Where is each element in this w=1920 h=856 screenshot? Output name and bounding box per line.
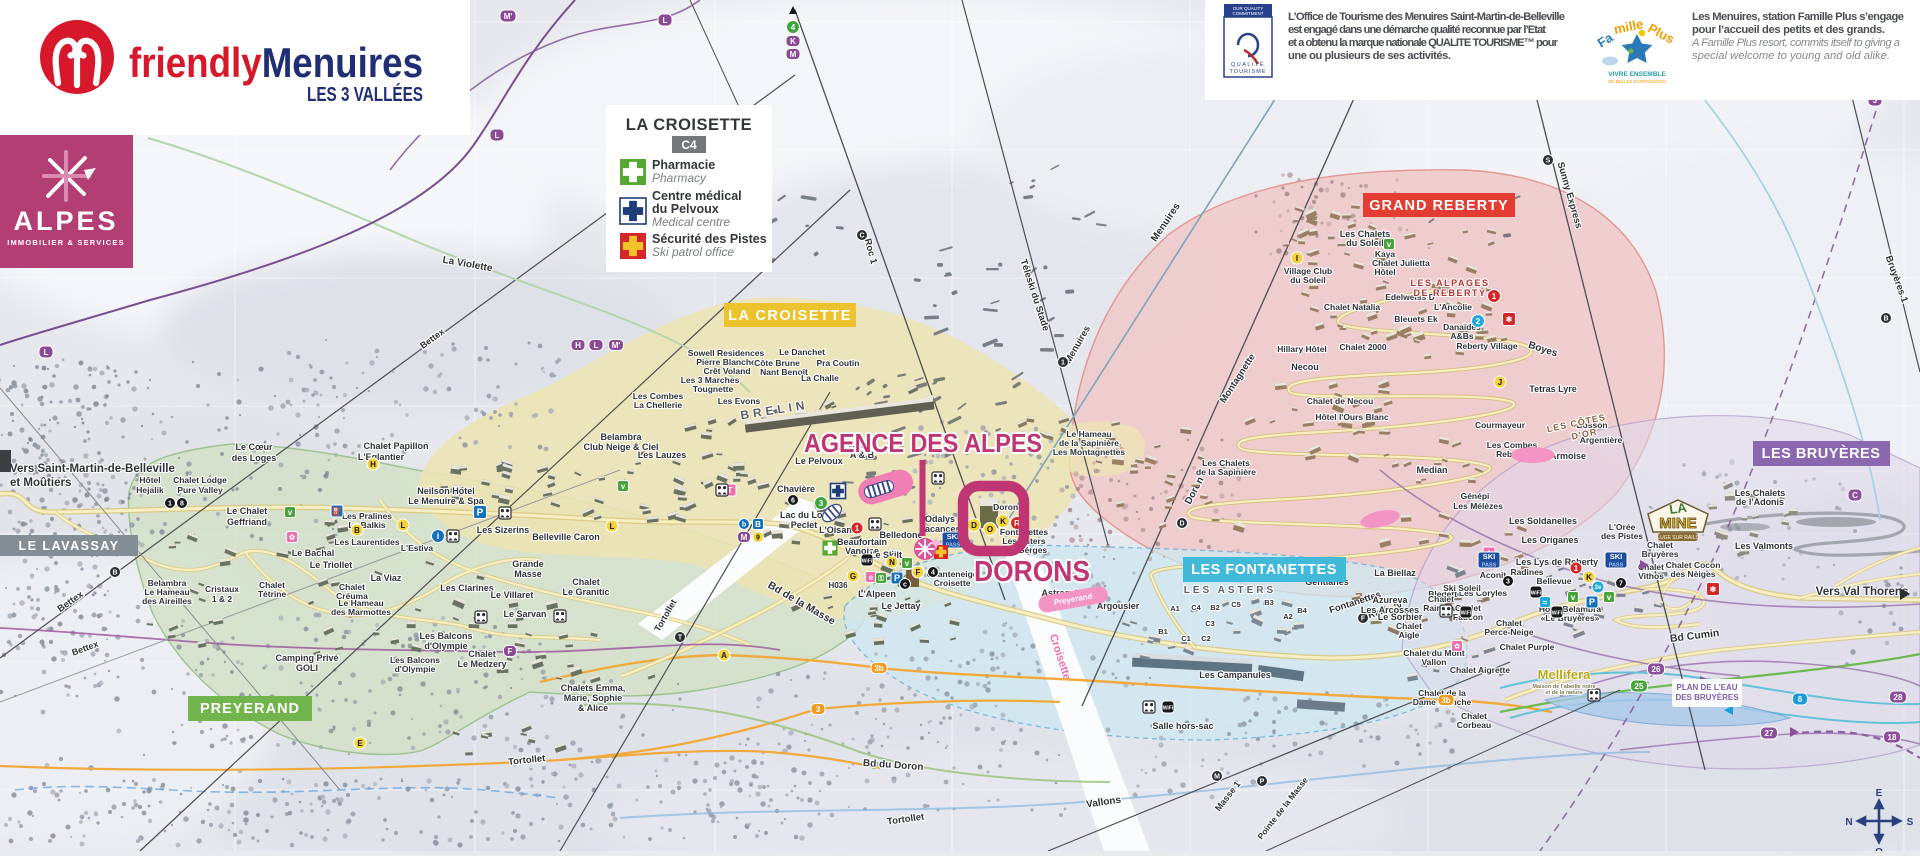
- svg-text:d'Olympie: d'Olympie: [424, 641, 467, 651]
- svg-text:P: P: [1589, 597, 1595, 607]
- svg-text:M': M': [504, 12, 513, 21]
- svg-text:L'Ancolie: L'Ancolie: [1434, 302, 1472, 312]
- svg-text:WiFi: WiFi: [862, 559, 873, 565]
- svg-text:PASS: PASS: [1482, 563, 1497, 569]
- svg-text:6: 6: [791, 498, 795, 505]
- svg-text:⛽: ⛽: [332, 506, 342, 516]
- svg-text:I: I: [1296, 254, 1298, 263]
- svg-text:E: E: [1876, 788, 1883, 799]
- svg-text:Chalet Lodge: Chalet Lodge: [173, 475, 227, 485]
- svg-text:Vallon: Vallon: [1421, 657, 1446, 667]
- svg-text:K: K: [1000, 517, 1006, 526]
- svg-text:Julietta: Julietta: [1400, 258, 1430, 268]
- svg-text:1: 1: [855, 524, 860, 533]
- svg-text:B: B: [354, 526, 360, 535]
- svg-text:B: B: [112, 570, 117, 577]
- svg-text:B2: B2: [1210, 603, 1220, 612]
- svg-text:M: M: [1214, 774, 1220, 781]
- svg-text:et Moûtiers: et Moûtiers: [10, 477, 71, 489]
- svg-text:du Soleil: du Soleil: [1346, 238, 1384, 248]
- svg-text:Necou: Necou: [1291, 362, 1319, 372]
- svg-text:La Chellerie: La Chellerie: [634, 400, 682, 410]
- svg-text:K: K: [1586, 573, 1592, 582]
- svg-text:Geffriand: Geffriand: [227, 517, 267, 527]
- svg-text:Les Balcons: Les Balcons: [419, 631, 472, 641]
- svg-text:Sécurité des Pistes: Sécurité des Pistes: [652, 232, 767, 246]
- svg-text:des Loges: des Loges: [232, 453, 277, 463]
- svg-text:P: P: [477, 508, 484, 519]
- svg-text:2e: 2e: [1595, 585, 1602, 591]
- svg-text:SKI: SKI: [1610, 552, 1623, 561]
- svg-text:une ou plusieurs de ses activi: une ou plusieurs de ses activités.: [1288, 50, 1451, 62]
- svg-text:Le Menuire & Spa: Le Menuire & Spa: [408, 496, 485, 506]
- svg-text:3: 3: [816, 705, 821, 714]
- svg-text:La Biellaz: La Biellaz: [1374, 568, 1416, 578]
- svg-text:des Aireilles: des Aireilles: [142, 596, 192, 606]
- svg-text:O: O: [987, 525, 993, 534]
- svg-text:A1: A1: [1170, 604, 1180, 613]
- svg-text:Le Triollet: Le Triollet: [310, 560, 353, 570]
- svg-text:Odalys: Odalys: [925, 514, 955, 524]
- svg-text:friendlyMenuires: friendlyMenuires: [129, 39, 423, 86]
- svg-text:c: c: [903, 582, 907, 589]
- svg-text:v: v: [1571, 593, 1576, 602]
- svg-text:1: 1: [1061, 360, 1065, 367]
- svg-text:i: i: [437, 531, 440, 541]
- svg-text:Dorons: Dorons: [993, 502, 1023, 512]
- svg-text:B1: B1: [1158, 627, 1168, 636]
- svg-text:special welcome to young and o: special welcome to young and old alike.: [1692, 50, 1890, 62]
- svg-text:LA CROISETTE: LA CROISETTE: [626, 116, 752, 134]
- svg-text:Hôtel: Hôtel: [1374, 267, 1395, 277]
- svg-text:S: S: [1907, 817, 1914, 828]
- svg-text:M: M: [741, 533, 748, 542]
- svg-text:Marie, Sophie: Marie, Sophie: [564, 693, 623, 703]
- svg-text:SKI: SKI: [1483, 552, 1496, 561]
- svg-text:1: 1: [168, 501, 172, 508]
- svg-text:S: S: [1546, 158, 1551, 165]
- svg-text:Cristaux: Cristaux: [205, 584, 239, 594]
- svg-text:O: O: [1875, 847, 1883, 851]
- svg-text:PREYERAND: PREYERAND: [200, 701, 300, 717]
- svg-text:28: 28: [1894, 693, 1903, 702]
- svg-text:Mellifera: Mellifera: [1538, 667, 1592, 682]
- svg-text:DORONS: DORONS: [974, 556, 1090, 588]
- svg-text:LA CROISETTE: LA CROISETTE: [728, 308, 852, 324]
- svg-text:LES ASTERS: LES ASTERS: [1184, 585, 1276, 596]
- svg-text:WiFi: WiFi: [1461, 611, 1472, 617]
- svg-text:6: 6: [1798, 695, 1803, 704]
- svg-text:d'Olympie: d'Olympie: [395, 664, 436, 674]
- svg-text:3: 3: [819, 499, 824, 508]
- svg-text:P: P: [1260, 779, 1265, 786]
- svg-text:Les Sizerins: Les Sizerins: [477, 525, 530, 535]
- svg-text:Les Soldanelles: Les Soldanelles: [1509, 516, 1577, 526]
- svg-text:b: b: [742, 522, 746, 529]
- svg-text:H: H: [370, 460, 376, 469]
- svg-text:LES BRUYÈRES: LES BRUYÈRES: [1762, 445, 1881, 462]
- svg-text:Les Lauzes: Les Lauzes: [638, 450, 687, 460]
- svg-text:Les Montagnettes: Les Montagnettes: [1053, 447, 1126, 457]
- svg-text:❄: ❄: [1506, 315, 1513, 324]
- svg-text:C: C: [1852, 491, 1858, 500]
- svg-text:⚿: ⚿: [878, 576, 884, 583]
- svg-text:3b: 3b: [874, 664, 883, 673]
- svg-text:Camping Privé: Camping Privé: [275, 653, 338, 663]
- svg-text:C4: C4: [1191, 603, 1201, 612]
- svg-text:Reberty Village: Reberty Village: [1456, 341, 1518, 351]
- svg-text:T: T: [678, 635, 683, 642]
- svg-text:L'Eglantier: L'Eglantier: [358, 452, 405, 462]
- svg-text:GOLI: GOLI: [296, 663, 318, 673]
- svg-text:LUGE SUR RAILS: LUGE SUR RAILS: [1657, 535, 1699, 541]
- svg-text:P: P: [894, 573, 900, 583]
- svg-text:ALPES: ALPES: [13, 206, 118, 236]
- svg-text:DE REBERTY: DE REBERTY: [1413, 288, 1486, 298]
- svg-text:M: M: [790, 50, 797, 59]
- svg-text:Bleuets Ek: Bleuets Ek: [1394, 314, 1438, 324]
- svg-text:Masse: Masse: [514, 569, 542, 579]
- svg-text:Chalet Natalia: Chalet Natalia: [1324, 302, 1380, 312]
- svg-text:SKI: SKI: [947, 532, 960, 541]
- svg-text:3: 3: [1506, 579, 1510, 586]
- svg-text:C3: C3: [1205, 619, 1215, 628]
- svg-text:WiFi: WiFi: [1552, 611, 1563, 617]
- svg-text:H: H: [575, 341, 581, 350]
- svg-text:❄: ❄: [1710, 585, 1717, 594]
- svg-text:Hillary Hôtel: Hillary Hôtel: [1277, 344, 1327, 354]
- svg-text:COMMITMENT: COMMITMENT: [1233, 11, 1264, 16]
- svg-text:Pharmacie: Pharmacie: [652, 158, 715, 172]
- svg-text:GRAND REBERTY: GRAND REBERTY: [1369, 198, 1508, 214]
- svg-text:≈: ≈: [1543, 598, 1548, 607]
- svg-text:N: N: [889, 558, 895, 567]
- svg-text:Croisette: Croisette: [934, 578, 971, 588]
- svg-text:Azureva: Azureva: [1372, 595, 1408, 605]
- svg-text:Belledone: Belledone: [879, 530, 922, 540]
- svg-text:Belleville Caron: Belleville Caron: [532, 532, 600, 542]
- svg-text:Les Evons: Les Evons: [718, 396, 761, 406]
- svg-text:B3: B3: [1264, 598, 1274, 607]
- svg-text:AGENCE DES ALPES: AGENCE DES ALPES: [804, 428, 1042, 458]
- svg-text:VIVRE ENSEMBLE: VIVRE ENSEMBLE: [1608, 71, 1666, 78]
- svg-text:Lac du Lou: Lac du Lou: [780, 510, 828, 520]
- svg-text:9: 9: [756, 535, 760, 542]
- svg-text:v: v: [1607, 593, 1612, 602]
- svg-text:et de la nature: et de la nature: [1545, 690, 1582, 696]
- svg-text:Aigle: Aigle: [1399, 630, 1420, 640]
- svg-text:Le Cœur: Le Cœur: [236, 442, 273, 452]
- svg-text:Chalet Aigrette: Chalet Aigrette: [1450, 665, 1510, 675]
- svg-text:L: L: [594, 341, 599, 350]
- svg-text:Le Chalet: Le Chalet: [227, 506, 268, 516]
- svg-text:est engagé dans une démarche q: est engagé dans une démarche qualité rec…: [1288, 24, 1546, 36]
- svg-text:Corbeau: Corbeau: [1457, 720, 1491, 730]
- svg-text:Centre médical: Centre médical: [652, 189, 742, 203]
- svg-text:D: D: [1179, 521, 1184, 528]
- svg-text:Chalet de Necou: Chalet de Necou: [1307, 396, 1374, 406]
- svg-text:F: F: [916, 568, 921, 577]
- svg-text:PASS: PASS: [1609, 563, 1624, 569]
- svg-text:A Famille Plus resort, commits: A Famille Plus resort, commits itself to…: [1691, 37, 1900, 49]
- svg-text:Medical centre: Medical centre: [652, 215, 730, 229]
- svg-text:Les Mélèzes: Les Mélèzes: [1453, 501, 1503, 511]
- svg-text:LES FONTANETTES: LES FONTANETTES: [1191, 562, 1337, 578]
- svg-text:A: A: [721, 651, 727, 660]
- svg-text:QUALITÉ: QUALITÉ: [1231, 61, 1265, 68]
- svg-text:E: E: [357, 739, 363, 748]
- svg-text:26: 26: [1652, 665, 1661, 674]
- svg-text:PLAN DE L'EAU: PLAN DE L'EAU: [1676, 683, 1737, 692]
- svg-text:Vers Saint-Martin-de-Bellevill: Vers Saint-Martin-de-Belleville: [10, 463, 175, 475]
- svg-text:✿: ✿: [289, 534, 295, 542]
- svg-text:25: 25: [1635, 682, 1644, 691]
- svg-text:Les Menuires, station Famille: Les Menuires, station Famille Plus s’eng…: [1692, 11, 1904, 23]
- svg-text:Pra Coutin: Pra Coutin: [817, 358, 860, 368]
- svg-text:DES BRUYÈRES: DES BRUYÈRES: [1675, 693, 1739, 702]
- svg-text:des Marmottes: des Marmottes: [331, 607, 391, 617]
- svg-text:de l'Adonis: de l'Adonis: [1736, 497, 1784, 507]
- svg-text:TOURISME: TOURISME: [1230, 69, 1267, 75]
- svg-text:D: D: [971, 521, 977, 530]
- svg-text:G: G: [850, 572, 856, 581]
- svg-text:Chavière: Chavière: [777, 484, 815, 494]
- svg-text:1: 1: [1574, 564, 1579, 573]
- svg-text:B4: B4: [1297, 606, 1307, 615]
- svg-text:Chalet: Chalet: [468, 649, 496, 659]
- svg-text:Le Granitic: Le Granitic: [562, 587, 609, 597]
- svg-text:Les Laurentides: Les Laurentides: [334, 537, 399, 547]
- svg-text:Les Lys de Reberty: Les Lys de Reberty: [1516, 557, 1598, 567]
- svg-text:Armoise: Armoise: [1550, 451, 1586, 461]
- svg-text:Bruyères: Bruyères: [1642, 549, 1679, 559]
- svg-text:Les Valmonts: Les Valmonts: [1735, 541, 1793, 551]
- svg-text:J: J: [1498, 378, 1502, 387]
- svg-text:LES 3 VALLÉES: LES 3 VALLÉES: [307, 83, 423, 106]
- svg-text:L: L: [401, 521, 406, 530]
- svg-text:des Nèiges: des Nèiges: [1671, 569, 1716, 579]
- svg-text:F: F: [508, 647, 513, 656]
- svg-text:F: F: [1361, 616, 1366, 623]
- svg-text:Le Danchet: Le Danchet: [779, 347, 825, 357]
- svg-text:Tétrine: Tétrine: [258, 589, 287, 599]
- svg-text:C: C: [859, 233, 864, 240]
- svg-text:Les Campanules: Les Campanules: [1199, 670, 1271, 680]
- svg-text:& Alice: & Alice: [578, 703, 608, 713]
- svg-text:L: L: [44, 348, 49, 357]
- svg-text:Les Clarines: Les Clarines: [440, 583, 494, 593]
- svg-text:v: v: [621, 482, 626, 491]
- svg-text:C4: C4: [681, 138, 697, 152]
- svg-text:18: 18: [1888, 733, 1897, 742]
- svg-text:L'Estiva: L'Estiva: [401, 543, 434, 553]
- svg-text:LE LAVASSAY: LE LAVASSAY: [18, 539, 119, 553]
- svg-text:Le Jettay: Le Jettay: [881, 601, 920, 611]
- svg-text:de la Sapinière: de la Sapinière: [1196, 467, 1256, 477]
- svg-text:Peclet: Peclet: [791, 520, 818, 530]
- svg-text:N: N: [1845, 817, 1852, 828]
- svg-text:8: 8: [180, 501, 184, 508]
- svg-text:Génépi: Génépi: [1461, 491, 1490, 501]
- svg-text:DE BELLES EXPÉRIENCES: DE BELLES EXPÉRIENCES: [1608, 78, 1666, 84]
- svg-text:L'Alpeen: L'Alpeen: [858, 589, 896, 599]
- svg-text:WiFi: WiFi: [1531, 591, 1542, 597]
- svg-text:L: L: [663, 16, 668, 25]
- svg-text:Ski Soleil: Ski Soleil: [1443, 583, 1481, 593]
- svg-text:Chalet 2000: Chalet 2000: [1339, 342, 1387, 352]
- svg-text:e: e: [869, 573, 874, 582]
- svg-text:Salle hors-sac: Salle hors-sac: [1152, 721, 1213, 731]
- svg-text:WiFi: WiFi: [1163, 706, 1174, 712]
- svg-text:Chalet: Chalet: [572, 577, 600, 587]
- svg-text:du Pelvoux: du Pelvoux: [652, 202, 719, 216]
- svg-text:L: L: [610, 522, 615, 531]
- svg-text:pour l’accueil des petits et d: pour l’accueil des petits et des grands.: [1692, 24, 1885, 36]
- svg-text:L’Office de Tourisme des Menui: L’Office de Tourisme des Menuires Saint-…: [1288, 11, 1565, 23]
- svg-text:3b: 3b: [1441, 696, 1450, 705]
- svg-text:Aconit: Aconit: [1480, 570, 1507, 580]
- svg-text:✿: ✿: [1454, 643, 1460, 651]
- svg-text:La Viaz: La Viaz: [371, 573, 402, 583]
- svg-text:2: 2: [1476, 317, 1481, 326]
- svg-text:Argousier: Argousier: [1097, 601, 1140, 611]
- svg-text:La Challe: La Challe: [801, 373, 839, 383]
- svg-text:Perce-Neige: Perce-Neige: [1484, 627, 1533, 637]
- svg-text:1 & 2: 1 & 2: [212, 594, 233, 604]
- svg-text:Hôtel: Hôtel: [139, 475, 160, 485]
- svg-text:Grande: Grande: [512, 559, 544, 569]
- svg-text:et a obtenu la marque national: et a obtenu la marque nationale QUALITE …: [1288, 37, 1559, 49]
- svg-text:A2: A2: [1283, 612, 1293, 621]
- svg-text:v: v: [1387, 240, 1392, 249]
- svg-text:Tougnette: Tougnette: [693, 384, 734, 394]
- svg-text:du Soleil: du Soleil: [1290, 275, 1325, 285]
- svg-text:7: 7: [1619, 581, 1623, 588]
- svg-text:C2: C2: [1201, 634, 1211, 643]
- svg-text:«Le Bruyères»: «Le Bruyères»: [1541, 613, 1600, 623]
- svg-text:Chalets Emma,: Chalets Emma,: [561, 683, 626, 693]
- svg-text:K: K: [790, 37, 796, 46]
- svg-text:Hejalik: Hejalik: [136, 485, 164, 495]
- svg-text:v: v: [288, 508, 293, 517]
- svg-text:LES ALPAGES: LES ALPAGES: [1410, 278, 1489, 288]
- svg-text:Ski patrol office: Ski patrol office: [652, 245, 734, 259]
- svg-text:Les Origanes: Les Origanes: [1521, 535, 1578, 545]
- svg-text:Le Bachal: Le Bachal: [292, 548, 335, 558]
- svg-text:Le Sarvan: Le Sarvan: [503, 609, 546, 619]
- svg-text:27: 27: [1765, 729, 1774, 738]
- svg-text:4: 4: [931, 570, 935, 577]
- svg-text:Pharmacy: Pharmacy: [652, 171, 707, 185]
- svg-text:IMMOBILIER & SERVICES: IMMOBILIER & SERVICES: [7, 238, 125, 247]
- svg-text:4: 4: [791, 23, 796, 32]
- svg-text:Vithos: Vithos: [1638, 571, 1664, 581]
- svg-text:Courmayeur: Courmayeur: [1475, 420, 1526, 430]
- svg-text:Tetras Lyre: Tetras Lyre: [1529, 384, 1577, 394]
- svg-text:B: B: [1883, 316, 1888, 323]
- svg-text:A&Bs: A&Bs: [1450, 331, 1473, 341]
- svg-text:Pure Valley: Pure Valley: [177, 485, 223, 495]
- svg-text:M': M': [612, 341, 621, 350]
- svg-text:Bellevue: Bellevue: [1537, 576, 1572, 586]
- svg-text:C5: C5: [1231, 600, 1241, 609]
- svg-text:C1: C1: [1181, 634, 1191, 643]
- svg-text:1: 1: [1492, 292, 1497, 301]
- svg-text:Chalet Purple: Chalet Purple: [1500, 642, 1555, 652]
- svg-text:Median: Median: [1416, 465, 1447, 475]
- svg-text:Belambra: Belambra: [600, 432, 642, 442]
- svg-text:Le Villaret: Le Villaret: [491, 590, 534, 600]
- svg-text:v: v: [905, 559, 910, 568]
- svg-text:L: L: [495, 131, 500, 140]
- svg-text:Vers Val Thorens: Vers Val Thorens: [1816, 586, 1909, 598]
- svg-text:Neilson Hotel: Neilson Hotel: [417, 486, 475, 496]
- svg-text:Chalet Papillon: Chalet Papillon: [363, 441, 428, 451]
- svg-text:MINE: MINE: [1659, 515, 1697, 532]
- svg-text:B: B: [755, 520, 761, 529]
- svg-text:H036: H036: [828, 581, 848, 590]
- svg-text:Hôtel l'Ours Blanc: Hôtel l'Ours Blanc: [1315, 412, 1389, 422]
- svg-text:des Pistes: des Pistes: [1601, 531, 1643, 541]
- svg-text:Le Medzery: Le Medzery: [457, 659, 506, 669]
